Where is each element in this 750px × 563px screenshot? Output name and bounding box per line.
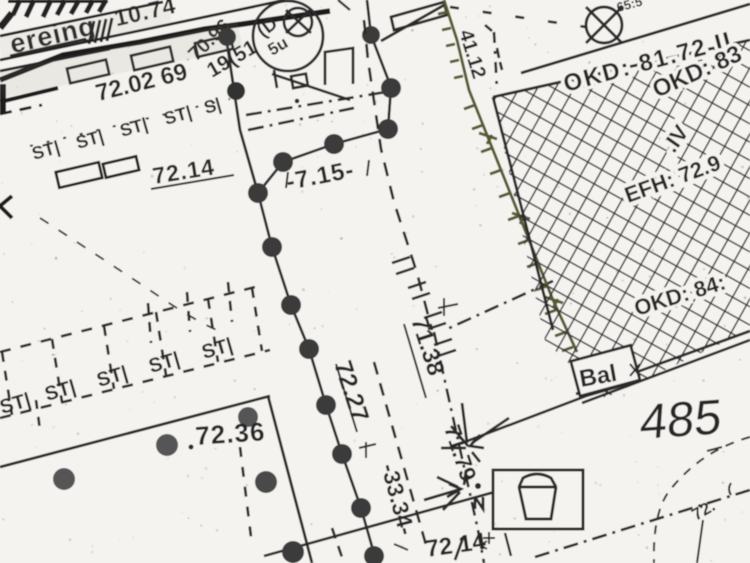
svg-text:72.36: 72.36 — [194, 416, 266, 451]
svg-text:485: 485 — [638, 389, 723, 450]
